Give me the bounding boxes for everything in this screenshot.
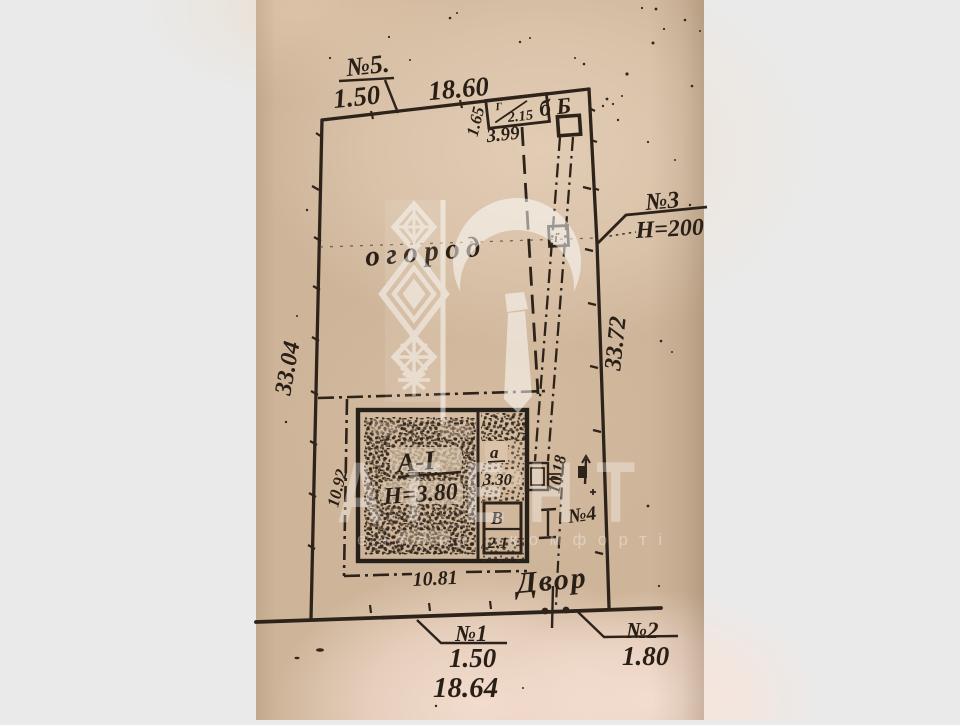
svg-text:1.50: 1.50 [332,79,383,114]
svg-text:№3: №3 [643,187,680,216]
svg-text:АГЕНТ: АГЕНТ [337,446,657,541]
svg-text:ентово комфорті: ентово комфорті [357,531,672,549]
svg-text:№2: №2 [625,618,659,643]
svg-text:3.99: 3.99 [484,123,521,148]
svg-text:№5.: №5. [344,49,391,82]
svg-text:1.80: 1.80 [622,641,670,671]
svg-text:Н=200: Н=200 [634,215,705,245]
svg-text:10.81: 10.81 [412,567,458,591]
svg-text:1.50: 1.50 [449,643,497,673]
svg-text:Двор: Двор [512,561,589,600]
svg-text:18.60: 18.60 [427,71,491,106]
svg-text:18.64: 18.64 [433,672,498,704]
